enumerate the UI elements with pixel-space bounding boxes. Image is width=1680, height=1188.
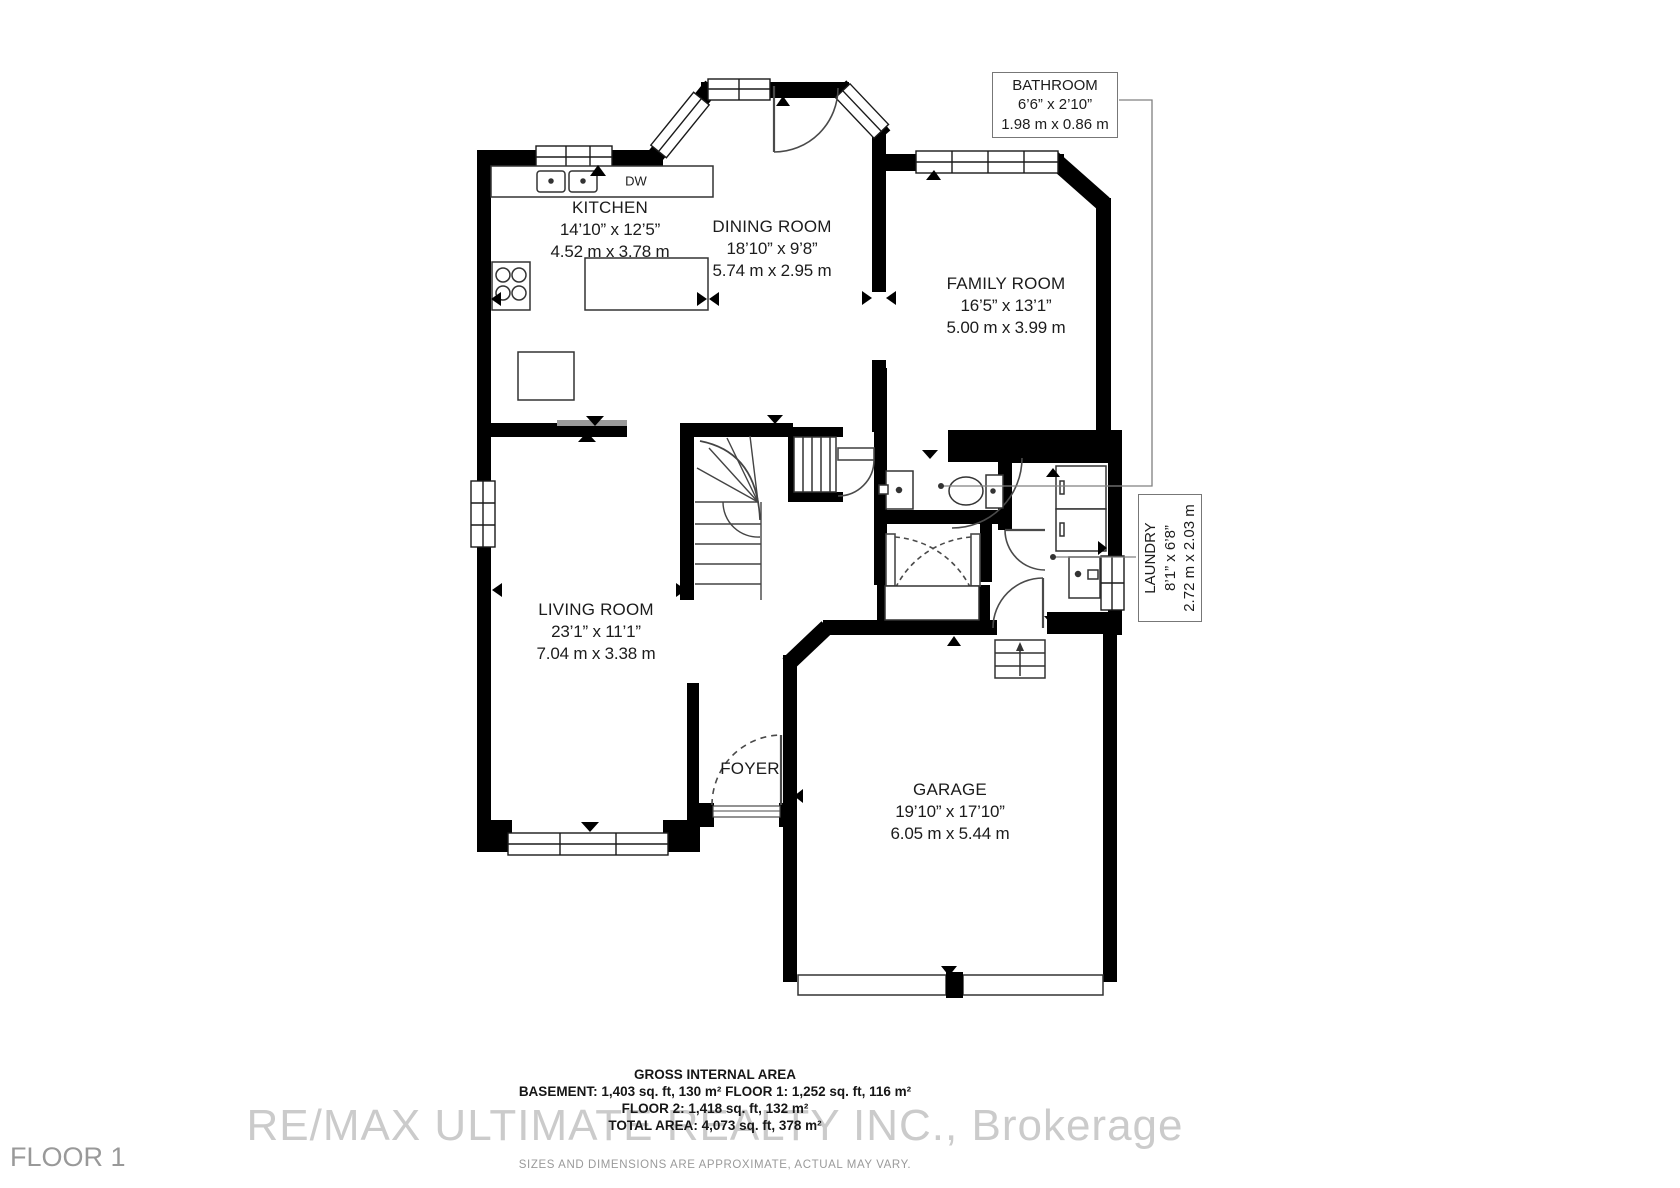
foyer-label: FOYER [720, 758, 780, 780]
gross-internal-area-block: GROSS INTERNAL AREA BASEMENT: 1,403 sq. … [315, 1066, 1115, 1134]
garage-dims-imperial: 19’10” x 17’10” [891, 801, 1010, 823]
bathroom-callout-name: BATHROOM [1012, 76, 1098, 96]
gross-area-line-3: TOTAL AREA: 4,073 sq. ft, 378 m² [315, 1117, 1115, 1134]
garage-doors [798, 972, 1103, 998]
bathroom-callout-metric: 1.98 m x 0.86 m [1001, 115, 1109, 135]
laundry-callout-imperial: 8’1” x 6’8” [1160, 494, 1180, 622]
laundry-callout-name: LAUNDRY [1141, 494, 1161, 622]
dining-room-label: DINING ROOM 18’10” x 9’8” 5.74 m x 2.95 … [712, 216, 831, 282]
garage-entry-door [993, 578, 1043, 628]
laundry-door [1005, 530, 1045, 570]
living-room-name: LIVING ROOM [537, 599, 656, 621]
kitchen-island [585, 258, 708, 310]
dining-room-dims-imperial: 18’10” x 9’8” [712, 238, 831, 260]
floorplan-drawing [0, 0, 1680, 1188]
kitchen-label: KITCHEN 14’10” x 12’5” 4.52 m x 3.78 m [551, 197, 670, 263]
gross-area-line-2: FLOOR 2: 1,418 sq. ft, 132 m² [315, 1100, 1115, 1117]
stair-closet-door [838, 448, 874, 496]
laundry-callout-metric: 2.72 m x 2.03 m [1180, 494, 1200, 622]
stairs [695, 436, 761, 600]
kitchen-dims-metric: 4.52 m x 3.78 m [551, 241, 670, 263]
garage-label: GARAGE 19’10” x 17’10” 6.05 m x 5.44 m [891, 779, 1010, 845]
floor-number-label: FLOOR 1 [10, 1142, 126, 1173]
dining-room-name: DINING ROOM [712, 216, 831, 238]
bathroom-callout: BATHROOM 6’6” x 2’10” 1.98 m x 0.86 m [992, 72, 1118, 138]
gross-area-title: GROSS INTERNAL AREA [315, 1066, 1115, 1083]
family-room-label: FAMILY ROOM 16’5” x 13’1” 5.00 m x 3.99 … [947, 273, 1066, 339]
kitchen-counter-return [518, 352, 574, 400]
gross-area-line-1: BASEMENT: 1,403 sq. ft, 130 m² FLOOR 1: … [315, 1083, 1115, 1100]
dishwasher-label: DW [625, 174, 647, 189]
laundry-callout-text: LAUNDRY 8’1” x 6’8” 2.72 m x 2.03 m [1141, 494, 1200, 622]
family-room-name: FAMILY ROOM [947, 273, 1066, 295]
laundry-callout: LAUNDRY 8’1” x 6’8” 2.72 m x 2.03 m [1138, 494, 1202, 622]
kitchen-dims-imperial: 14’10” x 12’5” [551, 219, 670, 241]
family-room-dims-imperial: 16’5” x 13’1” [947, 295, 1066, 317]
kitchen-name: KITCHEN [551, 197, 670, 219]
living-room-label: LIVING ROOM 23’1” x 11’1” 7.04 m x 3.38 … [537, 599, 656, 665]
laundry-sink-icon [1069, 557, 1100, 598]
toilet-icon [949, 475, 1003, 508]
living-room-dims-imperial: 23’1” x 11’1” [537, 621, 656, 643]
foyer-name: FOYER [720, 758, 780, 780]
floorplan-page: KITCHEN 14’10” x 12’5” 4.52 m x 3.78 m D… [0, 0, 1680, 1188]
living-room-dims-metric: 7.04 m x 3.38 m [537, 643, 656, 665]
hall-closet-box [885, 586, 979, 620]
washer-dryer-icon [1056, 466, 1106, 551]
stair-closet [794, 437, 836, 492]
garage-name: GARAGE [891, 779, 1010, 801]
family-room-dims-metric: 5.00 m x 3.99 m [947, 317, 1066, 339]
garage-dims-metric: 6.05 m x 5.44 m [891, 823, 1010, 845]
dimensions-disclaimer: SIZES AND DIMENSIONS ARE APPROXIMATE, AC… [519, 1159, 911, 1171]
hall-closet-double-doors [886, 534, 980, 589]
bathroom-callout-imperial: 6’6” x 2’10” [1018, 95, 1092, 115]
dining-room-dims-metric: 5.74 m x 2.95 m [712, 260, 831, 282]
garage-steps [995, 640, 1045, 678]
